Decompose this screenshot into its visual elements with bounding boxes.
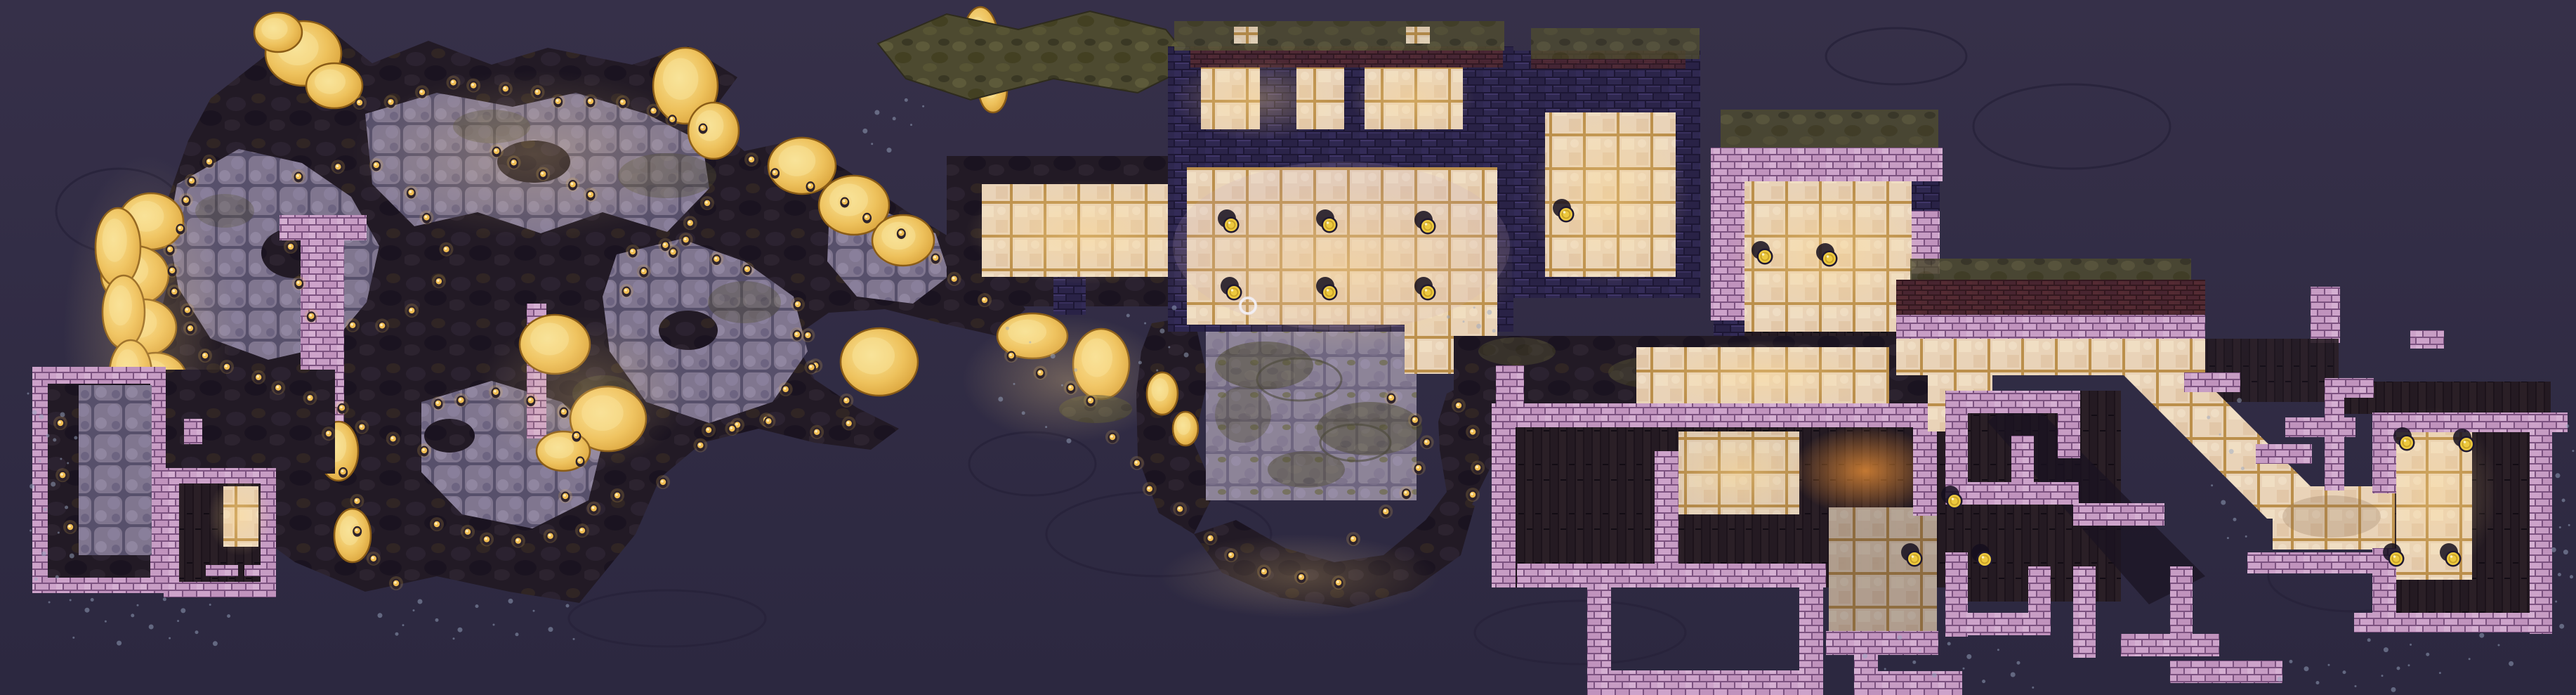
torch-icon xyxy=(1384,391,1398,405)
torch-icon xyxy=(810,425,824,439)
dust-speck xyxy=(1963,668,1965,670)
torch-core xyxy=(485,538,487,540)
gold-deposit xyxy=(1147,372,1178,415)
torch-core xyxy=(900,231,902,234)
dust-speck xyxy=(2558,573,2561,576)
torch-core xyxy=(203,353,206,356)
dust-speck xyxy=(39,460,41,462)
maze-wall xyxy=(1492,403,1516,587)
torch-icon xyxy=(1143,482,1157,496)
torch-icon xyxy=(1084,394,1098,408)
torch-core xyxy=(688,221,691,223)
game-viewport xyxy=(0,0,2576,695)
maze-wall xyxy=(1826,631,1938,655)
dust-speck xyxy=(227,614,230,618)
dust-speck xyxy=(2032,687,2034,689)
torch-core xyxy=(1384,509,1386,512)
torch-icon xyxy=(1033,365,1047,379)
torch-core xyxy=(1471,430,1473,433)
keep-moss-top xyxy=(1174,21,1504,51)
chamber-wall-south xyxy=(2354,613,2552,632)
dust-speck xyxy=(2469,658,2471,660)
dust-speck xyxy=(2011,673,2016,677)
torch-core xyxy=(580,528,583,531)
dust-speck xyxy=(1492,329,1496,332)
torch-icon xyxy=(1105,430,1119,444)
torch-core xyxy=(795,332,798,335)
torch-icon xyxy=(665,112,679,126)
torch-icon xyxy=(489,385,503,399)
dust-speck xyxy=(163,597,166,601)
torch-icon xyxy=(573,454,587,468)
torch-icon xyxy=(1173,502,1187,516)
torch-icon xyxy=(1294,570,1308,584)
torch-icon xyxy=(860,210,874,224)
dust-speck xyxy=(1074,368,1077,372)
torch-core xyxy=(1299,575,1302,578)
torch-icon xyxy=(1379,505,1393,519)
torch-core xyxy=(529,398,532,401)
dust-speck xyxy=(2391,687,2396,692)
torch-core xyxy=(1135,461,1138,464)
torch-core xyxy=(336,165,339,168)
torch-icon xyxy=(1332,576,1346,590)
dust-speck xyxy=(573,638,575,640)
torch-icon xyxy=(353,96,367,110)
torch-core xyxy=(715,257,718,260)
stair-upper-floor xyxy=(2205,339,2339,402)
gold-highlight xyxy=(778,145,815,176)
torch-core xyxy=(355,528,358,531)
torch-core xyxy=(425,216,428,219)
torch-core xyxy=(589,99,591,102)
dust-speck xyxy=(2479,633,2484,638)
torch-icon xyxy=(586,502,600,516)
dust-speck xyxy=(458,628,463,632)
gold-deposit xyxy=(254,13,302,52)
torch-icon xyxy=(1420,435,1434,449)
torch-core xyxy=(749,157,752,160)
dust-speck xyxy=(74,436,77,440)
torch-icon xyxy=(740,262,754,276)
torch-icon xyxy=(220,360,234,374)
torch-icon xyxy=(163,242,177,256)
torch-icon xyxy=(1466,424,1480,439)
dust-speck xyxy=(475,604,479,608)
dust-speck xyxy=(51,482,55,487)
dust-speck xyxy=(1126,314,1130,318)
dust-speck xyxy=(378,613,383,618)
dust-speck xyxy=(874,110,879,115)
torch-core xyxy=(380,324,383,327)
gold-highlight xyxy=(261,18,287,40)
torch-icon xyxy=(1130,456,1144,470)
torch-core xyxy=(621,100,624,103)
torch-core xyxy=(466,530,468,533)
dust-speck xyxy=(2381,675,2384,677)
dust-speck xyxy=(180,608,185,613)
dust-speck xyxy=(2211,484,2213,486)
torch-core xyxy=(374,163,377,166)
annex-moss-top xyxy=(1721,110,1938,150)
torch-icon xyxy=(700,196,714,210)
torch-icon xyxy=(647,104,661,118)
light-glow xyxy=(208,477,272,556)
dust-speck xyxy=(48,602,51,604)
coin-glint xyxy=(1982,556,1985,559)
torch-core xyxy=(437,279,440,282)
dust-speck xyxy=(887,148,892,152)
dust-speck xyxy=(1159,329,1164,334)
torch-icon xyxy=(1399,486,1413,500)
torch-core xyxy=(289,245,291,247)
dust-speck xyxy=(2498,644,2500,647)
torch-core xyxy=(556,99,559,102)
torch-icon xyxy=(271,381,285,395)
torch-icon xyxy=(610,488,624,502)
torch-core xyxy=(624,289,627,292)
torch-icon xyxy=(744,152,758,167)
torch-icon xyxy=(499,82,513,96)
dust-speck xyxy=(213,641,218,646)
torch-icon xyxy=(616,95,630,109)
torch-core xyxy=(705,201,708,204)
dust-speck xyxy=(2562,499,2565,502)
dust-speck xyxy=(1912,661,1916,664)
torch-icon xyxy=(536,167,550,181)
torch-core xyxy=(701,126,704,129)
stairhouse-pillar xyxy=(2311,287,2340,343)
game-map-canvas[interactable] xyxy=(0,0,2576,695)
torch-core xyxy=(355,499,358,502)
dust-speck xyxy=(53,439,56,442)
torch-icon xyxy=(431,396,445,410)
dust-speck xyxy=(2289,660,2293,663)
torch-core xyxy=(574,434,577,436)
torch-core xyxy=(188,326,191,329)
dust-speck xyxy=(2570,575,2573,578)
torch-icon xyxy=(696,121,710,135)
torch-icon xyxy=(928,251,942,265)
stairhouse-moss xyxy=(1910,259,2191,282)
dust-speck xyxy=(2237,398,2242,403)
dust-speck xyxy=(1862,654,1867,658)
rock-island xyxy=(659,311,718,350)
torch-icon xyxy=(447,75,461,89)
torch-icon xyxy=(619,284,633,298)
dust-speck xyxy=(1029,342,1031,344)
torch-core xyxy=(422,448,425,451)
crypt-wall-stub xyxy=(206,565,238,576)
moss-patch xyxy=(708,281,781,323)
maze-wall xyxy=(1945,482,2079,505)
dust-speck xyxy=(1184,353,1189,358)
torch-core xyxy=(309,314,312,317)
torch-icon xyxy=(251,370,265,384)
torch-icon xyxy=(404,186,418,200)
dust-speck xyxy=(44,508,47,512)
torch-icon xyxy=(1204,531,1218,545)
dust-speck xyxy=(34,578,38,581)
torch-icon xyxy=(1471,460,1485,474)
torch-core xyxy=(562,410,565,413)
chamber-wall-west-upper xyxy=(2372,429,2396,493)
dust-speck xyxy=(1997,649,1999,651)
dust-speck xyxy=(2017,661,2020,665)
torch-core xyxy=(1069,386,1072,389)
chamber-wall-east xyxy=(2530,429,2552,634)
torch-icon xyxy=(566,177,580,191)
torch-core xyxy=(571,183,574,186)
torch-core xyxy=(516,539,519,542)
coin-glint xyxy=(1327,221,1329,224)
dust-speck xyxy=(998,397,1003,402)
dust-speck xyxy=(533,610,535,612)
dust-speck xyxy=(149,625,154,630)
torch-core xyxy=(1476,466,1478,469)
torch-core xyxy=(745,267,748,270)
torch-core xyxy=(808,184,811,187)
bridge-weathering xyxy=(2282,495,2381,538)
torch-icon xyxy=(803,179,817,193)
keep-window xyxy=(1406,27,1430,44)
dust-speck xyxy=(453,637,455,639)
dust-speck xyxy=(1138,361,1142,365)
torch-icon xyxy=(507,155,521,169)
dust-speck xyxy=(2397,667,2400,670)
torch-core xyxy=(536,90,539,93)
dust-speck xyxy=(55,576,59,579)
dust-speck xyxy=(1947,642,1951,646)
torch-core xyxy=(494,390,497,393)
torch-core xyxy=(471,84,474,86)
torch-core xyxy=(1425,440,1428,443)
torch-icon xyxy=(839,394,853,408)
torch-core xyxy=(699,443,702,446)
gold-highlight xyxy=(663,58,699,100)
torch-core xyxy=(589,193,591,195)
torch-icon xyxy=(584,94,598,108)
coin-glint xyxy=(1952,498,1954,500)
dust-speck xyxy=(70,554,74,559)
moss-patch xyxy=(1478,337,1556,365)
torch-icon xyxy=(551,94,565,108)
maze-wall xyxy=(1854,655,1878,695)
torch-core xyxy=(1110,435,1113,438)
torch-core xyxy=(1413,418,1416,421)
dust-speck xyxy=(418,599,423,604)
torch-icon xyxy=(531,85,545,99)
torch-core xyxy=(185,308,188,311)
torch-core xyxy=(225,365,228,368)
gold-highlight xyxy=(1152,378,1169,401)
dust-speck xyxy=(32,410,37,415)
dust-speck xyxy=(1045,426,1047,428)
dust-speck xyxy=(1898,635,1903,640)
torch-core xyxy=(810,365,813,368)
torch-core xyxy=(615,493,618,496)
torch-icon xyxy=(386,431,400,446)
dust-speck xyxy=(2555,601,2557,603)
torch-core xyxy=(256,375,259,378)
coin-glint xyxy=(2450,555,2453,558)
torch-core xyxy=(1009,353,1012,356)
dust-speck xyxy=(91,598,94,602)
torch-core xyxy=(494,149,497,152)
torch-icon xyxy=(575,524,589,538)
torch-core xyxy=(933,256,936,259)
torch-core xyxy=(357,100,360,103)
torch-icon xyxy=(702,423,716,437)
dust-speck xyxy=(70,599,72,602)
torch-core xyxy=(296,174,299,177)
maze-wall xyxy=(1945,391,1968,482)
torch-core xyxy=(297,281,300,284)
torch-core xyxy=(1389,396,1392,398)
maze-coin-room-shade xyxy=(1829,507,1937,634)
gold-deposit xyxy=(1173,412,1198,446)
torch-core xyxy=(730,427,733,429)
torch-icon xyxy=(679,233,693,247)
torch-icon xyxy=(369,158,383,172)
dust-speck xyxy=(137,604,139,606)
torch-icon xyxy=(790,327,804,342)
cave-pillar xyxy=(280,215,367,240)
torch-icon xyxy=(384,95,398,109)
maze-wall xyxy=(1587,670,1823,695)
torch-icon xyxy=(768,166,782,180)
gold-deposit xyxy=(768,138,836,194)
torch-icon xyxy=(558,489,572,503)
torch-core xyxy=(168,247,171,250)
dust-speck xyxy=(105,621,107,623)
dust-speck xyxy=(177,620,179,622)
light-glow xyxy=(1173,56,1341,141)
torch-icon xyxy=(350,524,364,538)
coin-glint xyxy=(1827,255,1829,258)
torch-icon xyxy=(55,468,70,482)
maze-wall xyxy=(2073,566,2096,658)
torch-core xyxy=(276,386,279,389)
maze-wall xyxy=(2247,552,2374,573)
maze-wall xyxy=(2121,634,2219,656)
torch-icon xyxy=(658,238,672,252)
torch-icon xyxy=(1408,413,1422,427)
torch-icon xyxy=(791,297,805,311)
torch-core xyxy=(983,298,985,301)
torch-icon xyxy=(53,416,67,430)
torch-core xyxy=(340,406,343,409)
torch-icon xyxy=(842,416,856,430)
torch-core xyxy=(445,247,447,250)
torch-core xyxy=(394,581,397,584)
maze-wall xyxy=(2028,566,2051,635)
torch-icon xyxy=(304,309,318,323)
torch-icon xyxy=(725,422,739,436)
crypt-pillar xyxy=(184,419,202,444)
torch-core xyxy=(341,470,344,473)
coin-glint xyxy=(1228,221,1231,224)
torch-icon xyxy=(335,401,349,415)
torch-core xyxy=(952,277,955,280)
crypt-room-west-tiles xyxy=(79,385,152,555)
dust-speck xyxy=(1172,306,1177,311)
moss-patch xyxy=(1215,387,1271,443)
torch-core xyxy=(409,308,412,311)
torch-core xyxy=(671,250,674,253)
coin-glint xyxy=(1425,223,1428,226)
torch-icon xyxy=(346,318,360,332)
dust-speck xyxy=(2556,473,2561,478)
dust-speck xyxy=(2241,467,2245,470)
gold-highlight xyxy=(853,337,895,375)
torch-core xyxy=(58,421,61,424)
torch-core xyxy=(670,117,673,120)
maze-wall xyxy=(2170,566,2193,634)
dust-speck xyxy=(2219,434,2221,436)
torch-core xyxy=(435,522,438,525)
torch-core xyxy=(459,398,462,401)
dust-speck xyxy=(2233,518,2237,521)
dust-speck xyxy=(910,124,912,126)
crypt-wall-stub xyxy=(244,565,275,576)
torch-core xyxy=(190,179,192,182)
dust-speck xyxy=(2559,526,2561,528)
dust-speck xyxy=(2343,670,2346,674)
dust-speck xyxy=(1884,668,1886,670)
dust-speck xyxy=(29,530,32,532)
torch-core xyxy=(170,268,173,271)
dust-speck xyxy=(41,552,46,557)
torch-core xyxy=(806,333,809,336)
torch-core xyxy=(815,430,817,433)
torch-core xyxy=(420,90,423,93)
torch-core xyxy=(1039,371,1041,374)
torch-icon xyxy=(1224,548,1238,562)
dust-speck xyxy=(1051,353,1056,358)
torch-icon xyxy=(466,79,480,93)
torch-core xyxy=(1471,493,1473,495)
dust-speck xyxy=(1966,654,1971,659)
torch-core xyxy=(1178,507,1181,510)
dust-speck xyxy=(58,532,60,534)
dust-speck xyxy=(1061,384,1063,387)
torch-core xyxy=(68,525,71,528)
torch-icon xyxy=(415,85,429,99)
dust-speck xyxy=(2355,685,2357,687)
torch-core xyxy=(391,437,394,440)
dust-speck xyxy=(2221,500,2226,505)
maze-wall xyxy=(2058,391,2080,458)
torch-core xyxy=(1089,398,1091,401)
light-glow xyxy=(1159,183,1525,351)
torch-icon xyxy=(947,272,961,286)
dust-speck xyxy=(67,462,69,465)
northeast-moss-top xyxy=(1531,28,1700,59)
torch-icon xyxy=(804,361,818,375)
torch-core xyxy=(452,81,454,84)
torch-core xyxy=(592,507,595,509)
dust-speck xyxy=(1022,411,1025,415)
dust-speck xyxy=(60,413,65,417)
dust-speck xyxy=(2410,644,2412,646)
dust-speck xyxy=(2278,677,2282,682)
torch-core xyxy=(796,302,799,305)
dust-speck xyxy=(2563,550,2568,554)
torch-core xyxy=(1262,570,1265,573)
torch-icon xyxy=(544,529,558,543)
dust-speck xyxy=(435,618,439,622)
